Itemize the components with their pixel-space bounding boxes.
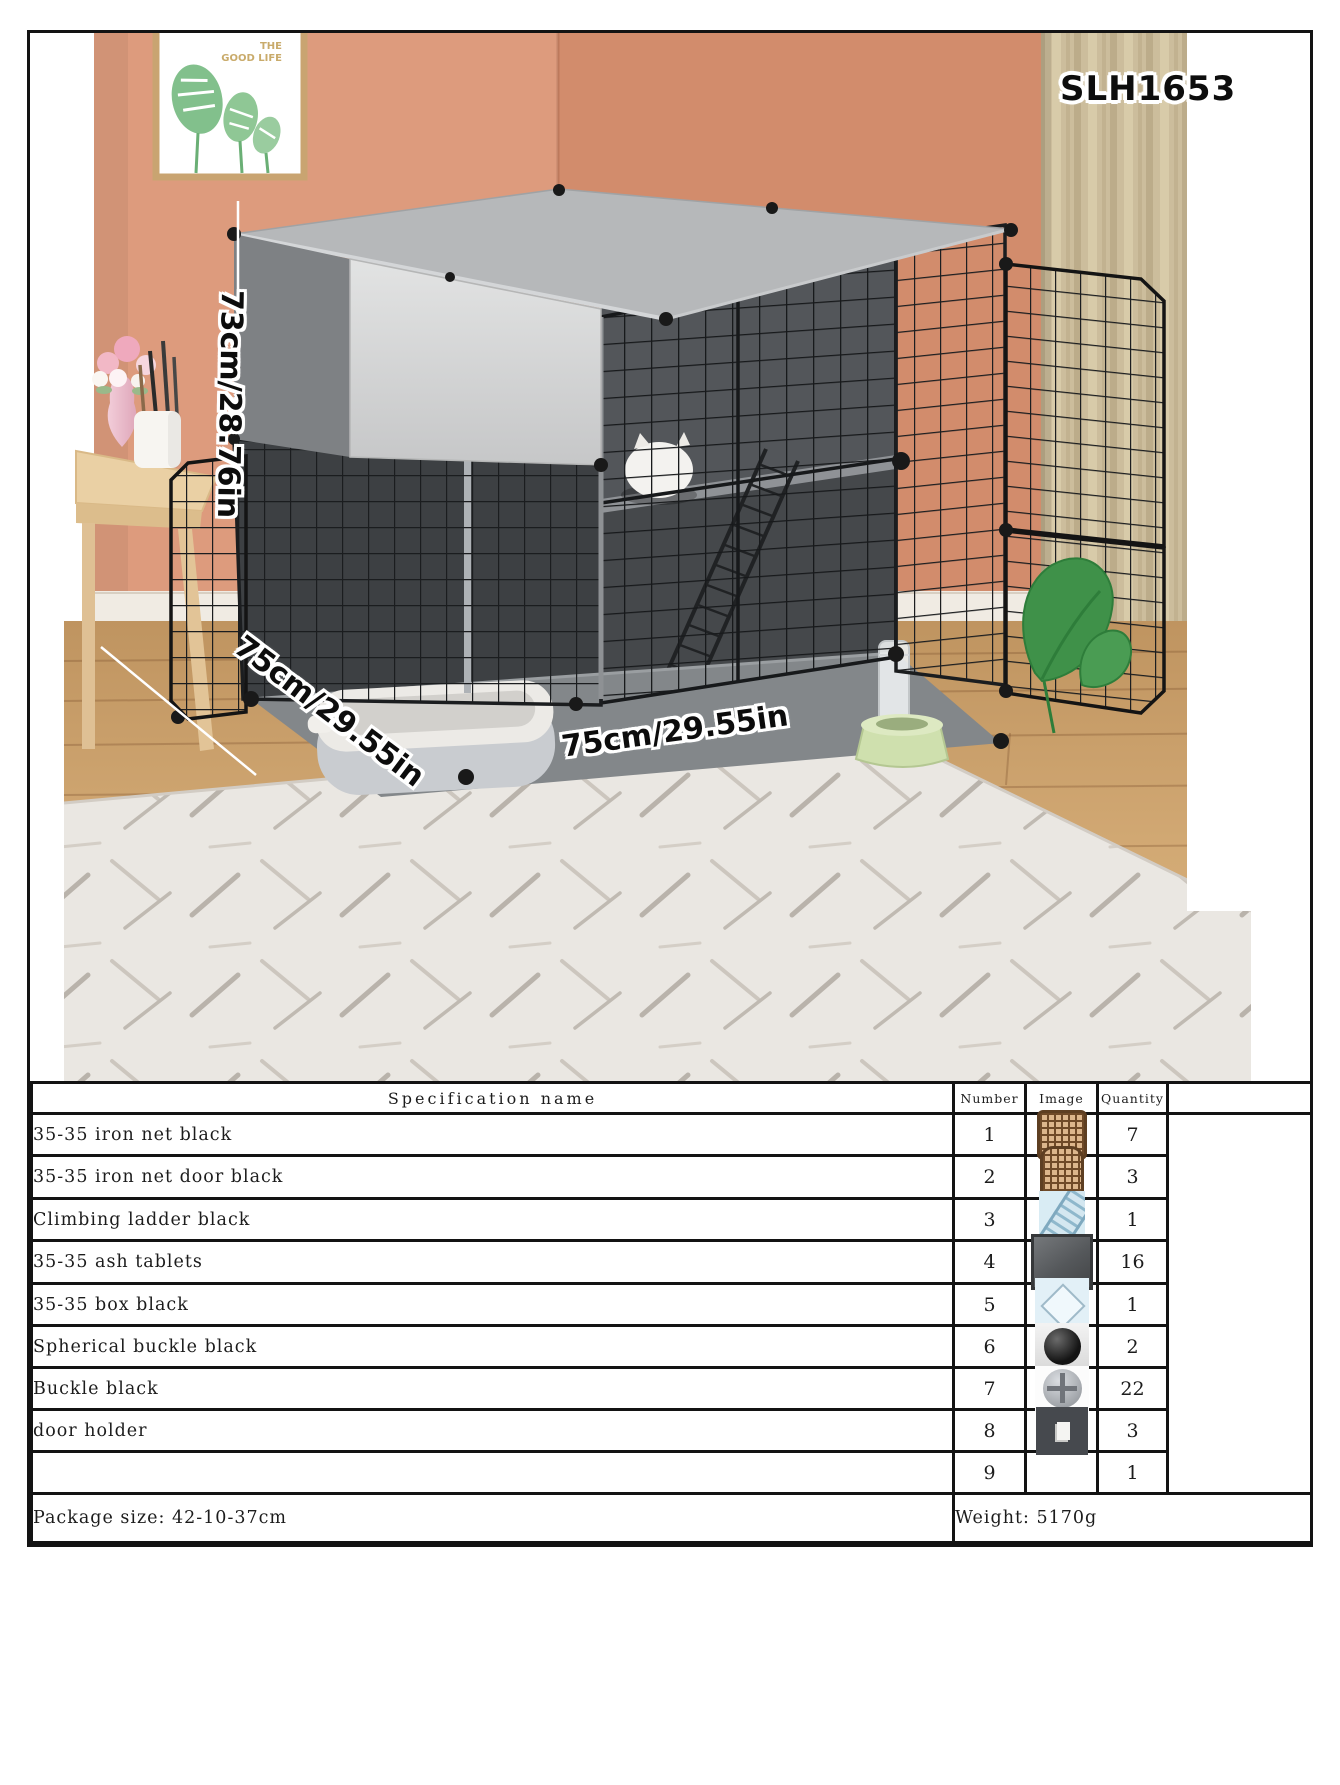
spec-quantity-cell: 22 <box>1098 1368 1168 1410</box>
spec-image-cell <box>1026 1326 1098 1368</box>
spec-number-cell: 5 <box>954 1284 1026 1326</box>
spec-header-empty <box>1168 1083 1312 1114</box>
empty-column-cell <box>1168 1114 1312 1494</box>
model-number-label: SLH1653 <box>1060 69 1236 109</box>
cage-gray-panel <box>234 234 350 457</box>
spec-row: 35-35 iron net black17 <box>32 1114 1312 1156</box>
spec-number-cell: 9 <box>954 1452 1026 1494</box>
spec-name-cell: Buckle black <box>32 1368 954 1410</box>
spec-name-cell: 35-35 iron net black <box>32 1114 954 1156</box>
spec-quantity-cell: 7 <box>1098 1114 1168 1156</box>
product-listing-image: THE GOOD LIFE <box>0 0 1340 1785</box>
spec-name-cell: 35-35 iron net door black <box>32 1156 954 1199</box>
spec-row: 35-35 iron net door black23 <box>32 1156 1312 1199</box>
spec-footer-row: Package size: 42-10-37cm Weight: 5170g <box>32 1494 1312 1543</box>
spec-number-cell: 4 <box>954 1241 1026 1284</box>
spec-number-cell: 7 <box>954 1368 1026 1410</box>
spec-quantity-cell: 2 <box>1098 1326 1168 1368</box>
spec-quantity-cell: 3 <box>1098 1156 1168 1199</box>
spec-number-cell: 8 <box>954 1410 1026 1452</box>
frame-caption-line2: GOOD LIFE <box>221 53 282 64</box>
bordered-board: THE GOOD LIFE <box>27 30 1313 1547</box>
package-size-cell: Package size: 42-10-37cm <box>32 1494 954 1543</box>
spec-number-cell: 3 <box>954 1199 1026 1241</box>
spec-quantity-cell: 1 <box>1098 1284 1168 1326</box>
cage-door-upper <box>1006 264 1164 546</box>
spec-quantity-cell: 1 <box>1098 1452 1168 1494</box>
framed-leaf-picture: THE GOOD LIFE <box>156 33 304 177</box>
weight-cell: Weight: 5170g <box>954 1494 1312 1543</box>
spec-image-cell <box>1026 1452 1098 1494</box>
spec-quantity-cell: 3 <box>1098 1410 1168 1452</box>
spec-name-cell: Climbing ladder black <box>32 1199 954 1241</box>
spherical-buckle-thumbnail <box>1035 1323 1089 1371</box>
door-holder-thumbnail <box>1036 1407 1088 1455</box>
spec-header-image: Image <box>1026 1083 1098 1114</box>
spec-name-cell: 35-35 box black <box>32 1284 954 1326</box>
spec-row: Spherical buckle black62 <box>32 1326 1312 1368</box>
spec-row: door holder83 <box>32 1410 1312 1452</box>
frame-caption-line1: THE <box>260 41 282 52</box>
spec-name-cell: 35-35 ash tablets <box>32 1241 954 1284</box>
spec-image-cell <box>1026 1284 1098 1326</box>
spec-row: Buckle black722 <box>32 1368 1312 1410</box>
spec-number-cell: 2 <box>954 1156 1026 1199</box>
spec-table-body: 35-35 iron net black1735-35 iron net doo… <box>32 1114 1312 1494</box>
specification-table: Specification name Number Image Quantity… <box>30 1081 1313 1544</box>
spec-name-cell: door holder <box>32 1410 954 1452</box>
spec-header-number: Number <box>954 1083 1026 1114</box>
height-dimension-label: 73cm/28.76in <box>208 289 250 520</box>
spec-row: 35-35 box black51 <box>32 1284 1312 1326</box>
spec-name-cell <box>32 1452 954 1494</box>
spec-row: Climbing ladder black31 <box>32 1199 1312 1241</box>
buckle-thumbnail <box>1035 1366 1089 1412</box>
pet-bowl <box>856 714 948 767</box>
room-scene: THE GOOD LIFE <box>30 33 1310 1081</box>
spec-image-cell <box>1026 1410 1098 1452</box>
spec-number-cell: 1 <box>954 1114 1026 1156</box>
spec-name-cell: Spherical buckle black <box>32 1326 954 1368</box>
product-photo: THE GOOD LIFE <box>30 33 1310 1081</box>
spec-header-row: Specification name Number Image Quantity <box>32 1083 1312 1114</box>
cage-side-mesh <box>896 225 1005 685</box>
spec-image-cell <box>1026 1368 1098 1410</box>
spec-quantity-cell: 1 <box>1098 1199 1168 1241</box>
spec-header-name: Specification name <box>32 1083 954 1114</box>
spec-row: 91 <box>32 1452 1312 1494</box>
spec-quantity-cell: 16 <box>1098 1241 1168 1284</box>
spec-row: 35-35 ash tablets416 <box>32 1241 1312 1284</box>
spec-header-quantity: Quantity <box>1098 1083 1168 1114</box>
spec-number-cell: 6 <box>954 1326 1026 1368</box>
